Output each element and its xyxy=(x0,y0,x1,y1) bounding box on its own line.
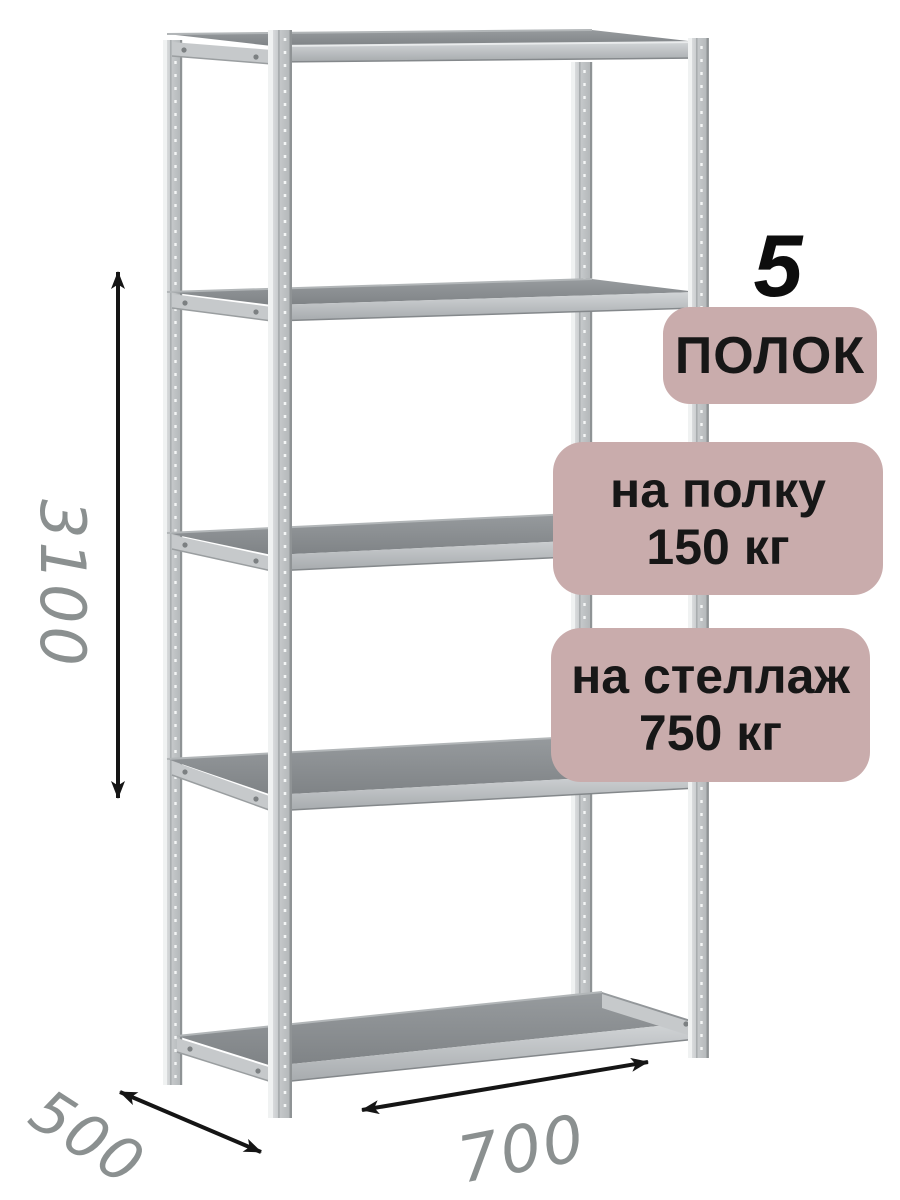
post-front-left xyxy=(268,30,292,1118)
shelf-count-number: 5 xyxy=(720,222,836,310)
shelf-1 xyxy=(167,30,697,64)
post-back-left xyxy=(163,40,182,1085)
product-image: 3100 700 500 5 ПОЛОК на полку 150 кг на … xyxy=(0,0,900,1200)
per-rack-load-line2: 750 кг xyxy=(639,705,782,762)
per-shelf-load-badge: на полку 150 кг xyxy=(553,442,883,595)
per-rack-load-line1: на стеллаж xyxy=(571,648,850,705)
height-dimension-label: 3100 xyxy=(31,469,93,699)
per-shelf-load-line1: на полку xyxy=(610,462,826,519)
shelf-2 xyxy=(167,279,697,321)
per-shelf-load-line2: 150 кг xyxy=(646,519,789,576)
shelving-rack-illustration xyxy=(0,0,900,1200)
shelf-count-badge: ПОЛОК xyxy=(663,307,877,404)
shelf-5 xyxy=(177,992,697,1083)
per-rack-load-badge: на стеллаж 750 кг xyxy=(551,628,870,782)
shelf-count-label: ПОЛОК xyxy=(675,326,865,386)
